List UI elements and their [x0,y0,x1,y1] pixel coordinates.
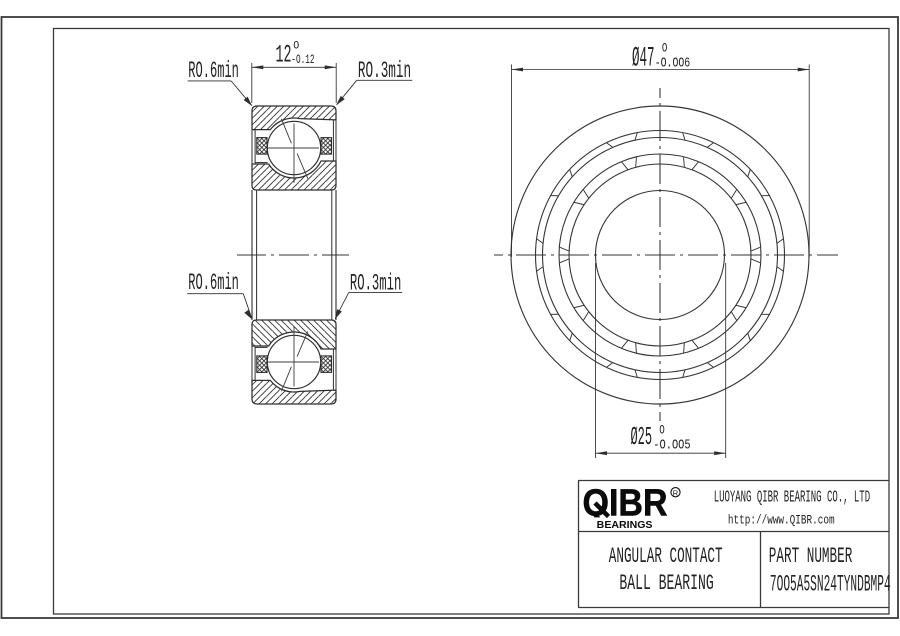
svg-text:R: R [673,489,679,498]
svg-text:12: 12 [276,40,292,69]
svg-text:BALL BEARING: BALL BEARING [619,570,713,596]
svg-text:-O.OO5: -O.OO5 [653,439,690,454]
svg-text:-O.OO6: -O.OO6 [655,56,691,71]
svg-text:ANGULAR CONTACT: ANGULAR CONTACT [609,543,723,569]
svg-text:http://www.QIBR.com: http://www.QIBR.com [728,513,835,528]
svg-text:RO.6min: RO.6min [188,58,239,84]
svg-text:-O.12: -O.12 [291,53,314,67]
svg-text:Ø25: Ø25 [631,422,653,452]
svg-text:O: O [662,41,668,56]
svg-text:RO.6min: RO.6min [188,270,239,296]
svg-text:BEARINGS: BEARINGS [597,519,653,531]
svg-text:O: O [659,422,665,437]
svg-text:LUOYANG QIBR BEARING CO., LTD: LUOYANG QIBR BEARING CO., LTD [714,489,870,508]
svg-text:PART NUMBER: PART NUMBER [769,543,853,569]
svg-text:7OO5A5SN24TYNDBMP4: 7OO5A5SN24TYNDBMP4 [770,572,891,598]
svg-text:Ø47: Ø47 [632,44,655,75]
svg-text:O: O [293,40,299,52]
